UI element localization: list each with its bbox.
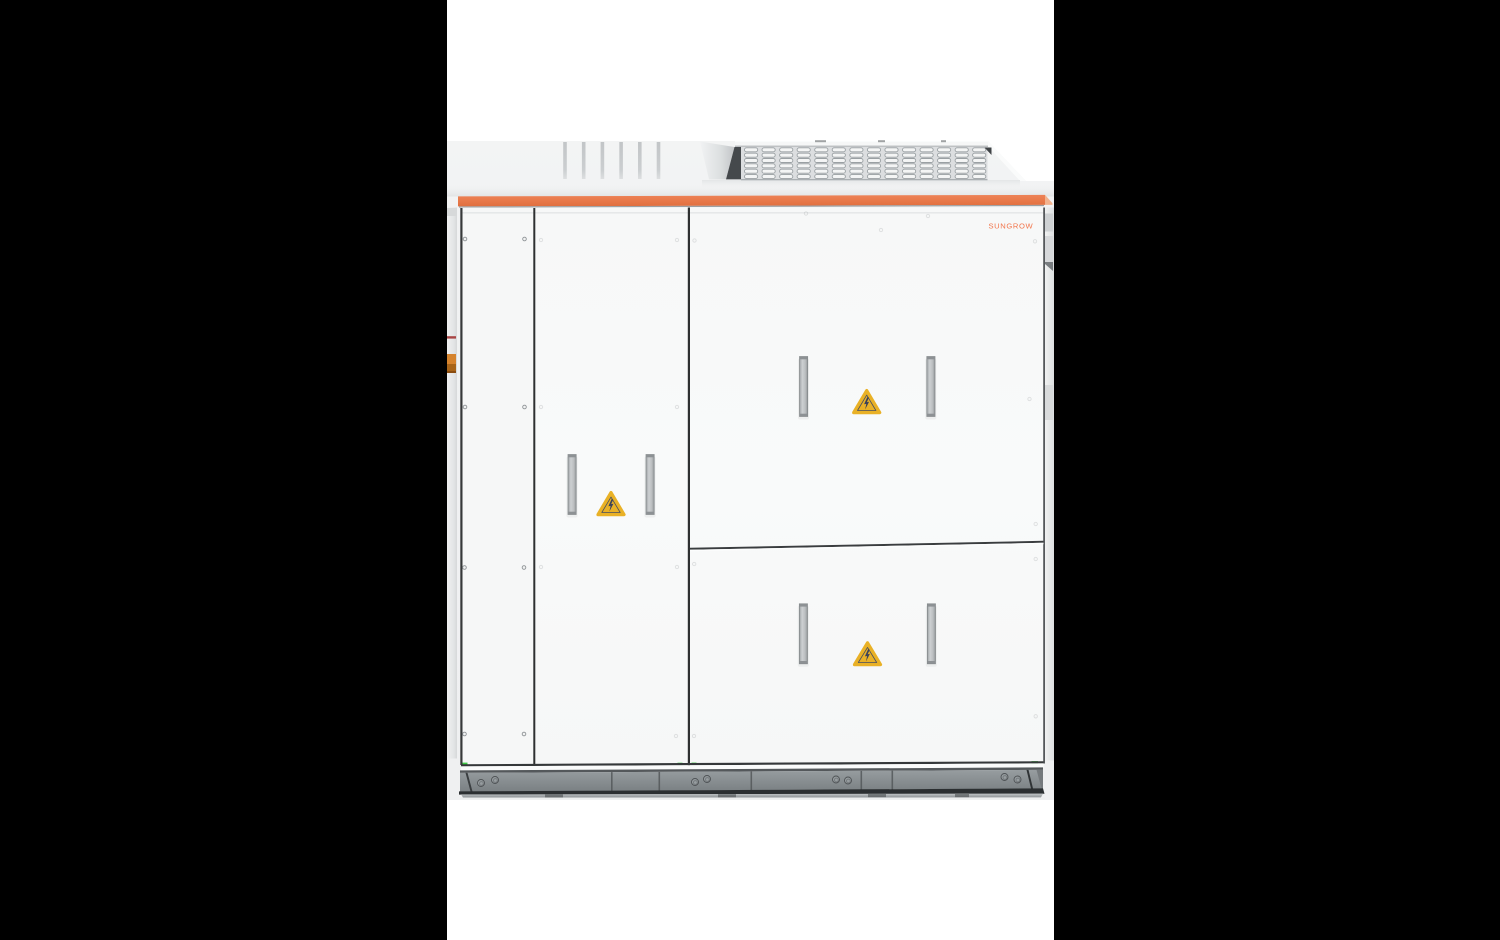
svg-text:SUNGROW: SUNGROW [989,221,1034,230]
